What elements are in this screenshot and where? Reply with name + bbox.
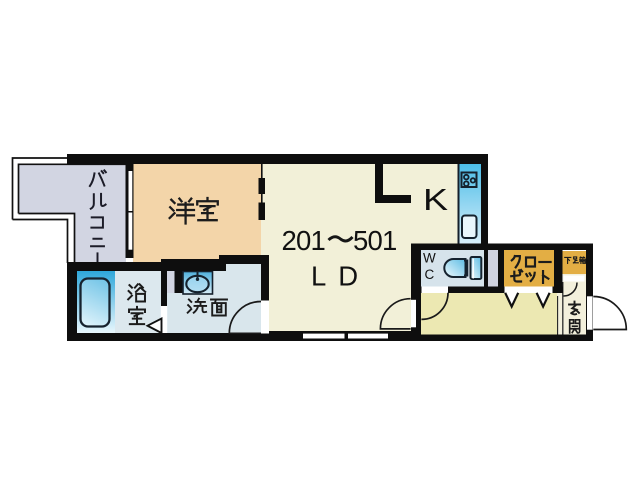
svg-text:201: 201 <box>282 225 325 256</box>
svg-text:501: 501 <box>353 225 396 256</box>
svg-text:C: C <box>425 267 435 282</box>
svg-text:K: K <box>423 183 448 217</box>
svg-text:LD: LD <box>311 261 370 292</box>
svg-text:W: W <box>423 251 436 266</box>
